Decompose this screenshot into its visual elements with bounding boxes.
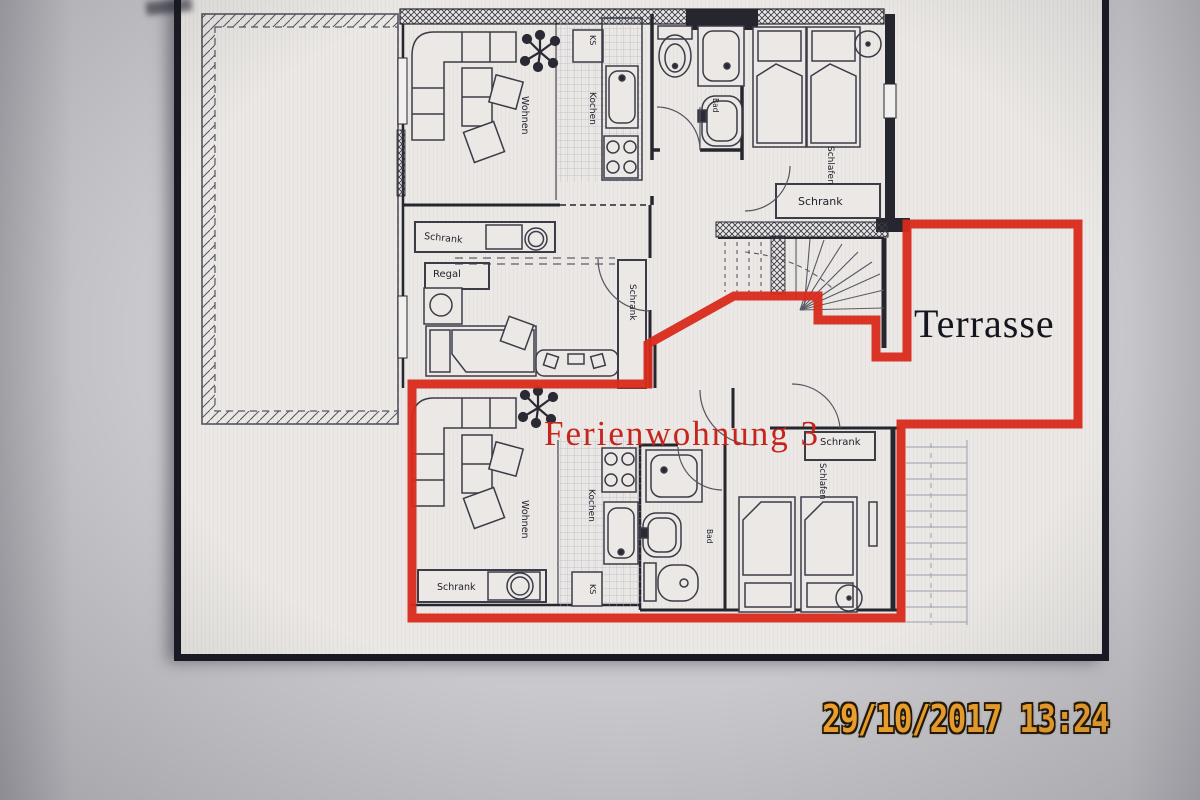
dashed-balcony-outline xyxy=(202,14,398,424)
room-label-kochen-lower: Kochen xyxy=(586,489,595,522)
camera-timestamp: 29/10/2017 13:24 xyxy=(822,697,1109,741)
apartment-3-label: Ferienwohnung 3 xyxy=(544,416,820,451)
label-regal: Regal xyxy=(433,270,461,280)
room-label-schlafen-lower: Schlafen xyxy=(818,463,827,500)
label-schrank-lower-left: Schrank xyxy=(437,583,476,593)
exterior-stairs xyxy=(906,440,967,625)
room-label-bad-upper: Bad xyxy=(712,98,720,113)
terrace-label: Terrasse xyxy=(914,304,1055,344)
room-label-wohnen-lower: Wohnen xyxy=(520,500,530,539)
room-label-kochen-upper: Kochen xyxy=(587,92,596,125)
room-label-bad-lower: Bad xyxy=(706,529,714,544)
label-schrank-upper-bedroom: Schrank xyxy=(798,196,843,207)
room-label-ks-lower: KS xyxy=(588,584,596,594)
plant-icon xyxy=(521,31,559,71)
middle-apartment xyxy=(415,222,646,388)
room-label-ks-upper: KS xyxy=(588,35,596,45)
label-schrank-middle-right: Schrank xyxy=(627,284,636,321)
floorplan-drawing xyxy=(0,0,1200,800)
upper-apartment xyxy=(412,18,881,218)
room-label-schlafen-upper: Schlafen xyxy=(825,146,834,185)
room-label-wohnen-upper: Wohnen xyxy=(520,96,530,135)
photo-of-floorplan: { "photo": { "camera_timestamp": "29/10/… xyxy=(0,0,1200,800)
label-schrank-lower-bedroom: Schrank xyxy=(820,438,861,448)
